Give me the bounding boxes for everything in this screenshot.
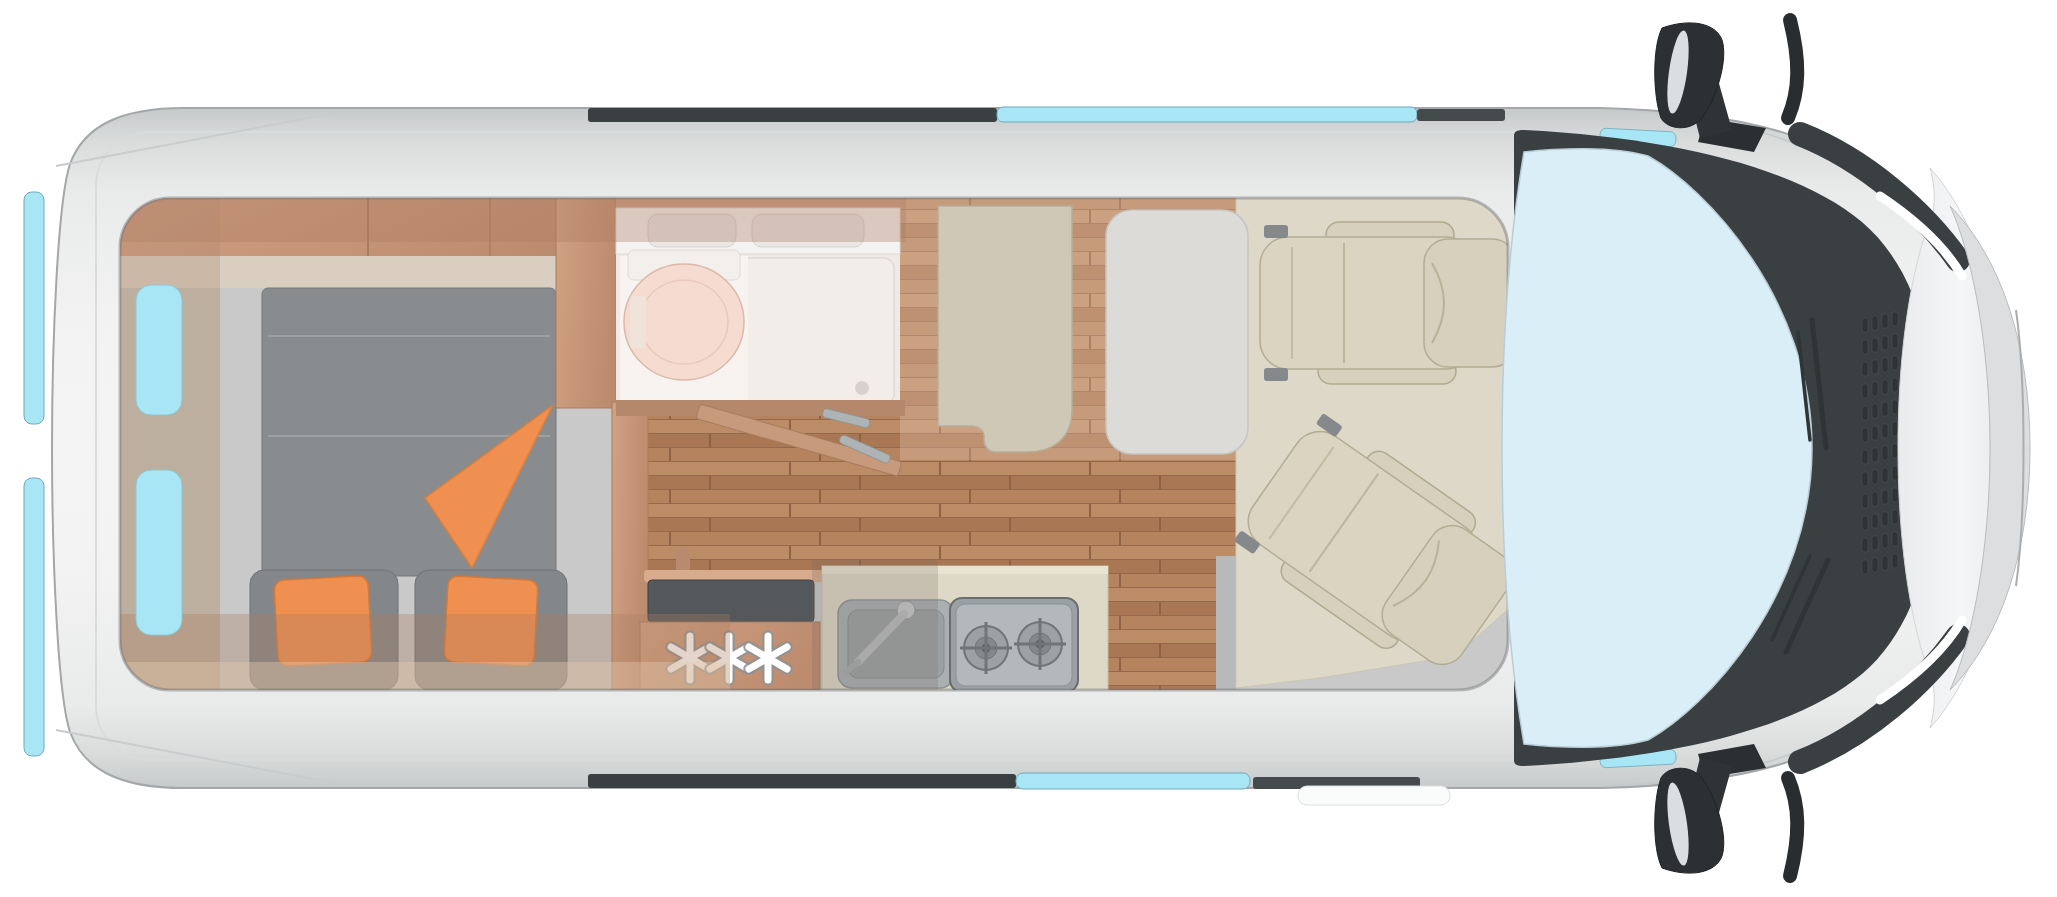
gas-hob — [950, 598, 1078, 692]
shower-tray — [732, 258, 894, 404]
door-seal-top — [588, 108, 997, 122]
sliding-door-window-bottom — [1016, 773, 1250, 789]
rear-window-strip-lower — [24, 478, 44, 756]
mattress — [262, 288, 556, 576]
interior-cutaway — [120, 150, 1531, 700]
sliding-door-window-top — [997, 107, 1417, 122]
door-seal-top-front — [1417, 109, 1505, 121]
rear-door-window-interior-lower — [136, 470, 182, 635]
campervan-floorplan-stage: ✳✳✳ — [0, 0, 2057, 897]
swivel-seat-rear-facing — [1260, 222, 1516, 384]
rear-door-windows-exterior — [24, 192, 44, 756]
bathroom-bottom-wall — [616, 400, 905, 416]
campervan-floorplan — [0, 0, 2057, 897]
door-pillar-overlay — [812, 560, 938, 700]
toilet-hinge — [630, 296, 646, 348]
dinette-bench — [938, 206, 1072, 452]
floor-step-strip — [1216, 556, 1236, 694]
mirror-shadow-arc — [1788, 778, 1797, 876]
mirror-shadow-arc — [1788, 20, 1797, 118]
door-seal-bottom — [588, 774, 1016, 788]
rear-door-window-interior-upper — [136, 285, 182, 415]
overhead-band-overlay — [120, 198, 906, 242]
cab-entry-wood-floor — [1105, 574, 1216, 694]
side-unit-light-overlay — [120, 662, 730, 690]
front-end — [1502, 130, 2030, 766]
rear-window-strip-upper — [24, 192, 44, 424]
shower-drain — [855, 381, 869, 395]
entry-step — [1298, 786, 1450, 805]
dinette-table — [1106, 210, 1248, 454]
